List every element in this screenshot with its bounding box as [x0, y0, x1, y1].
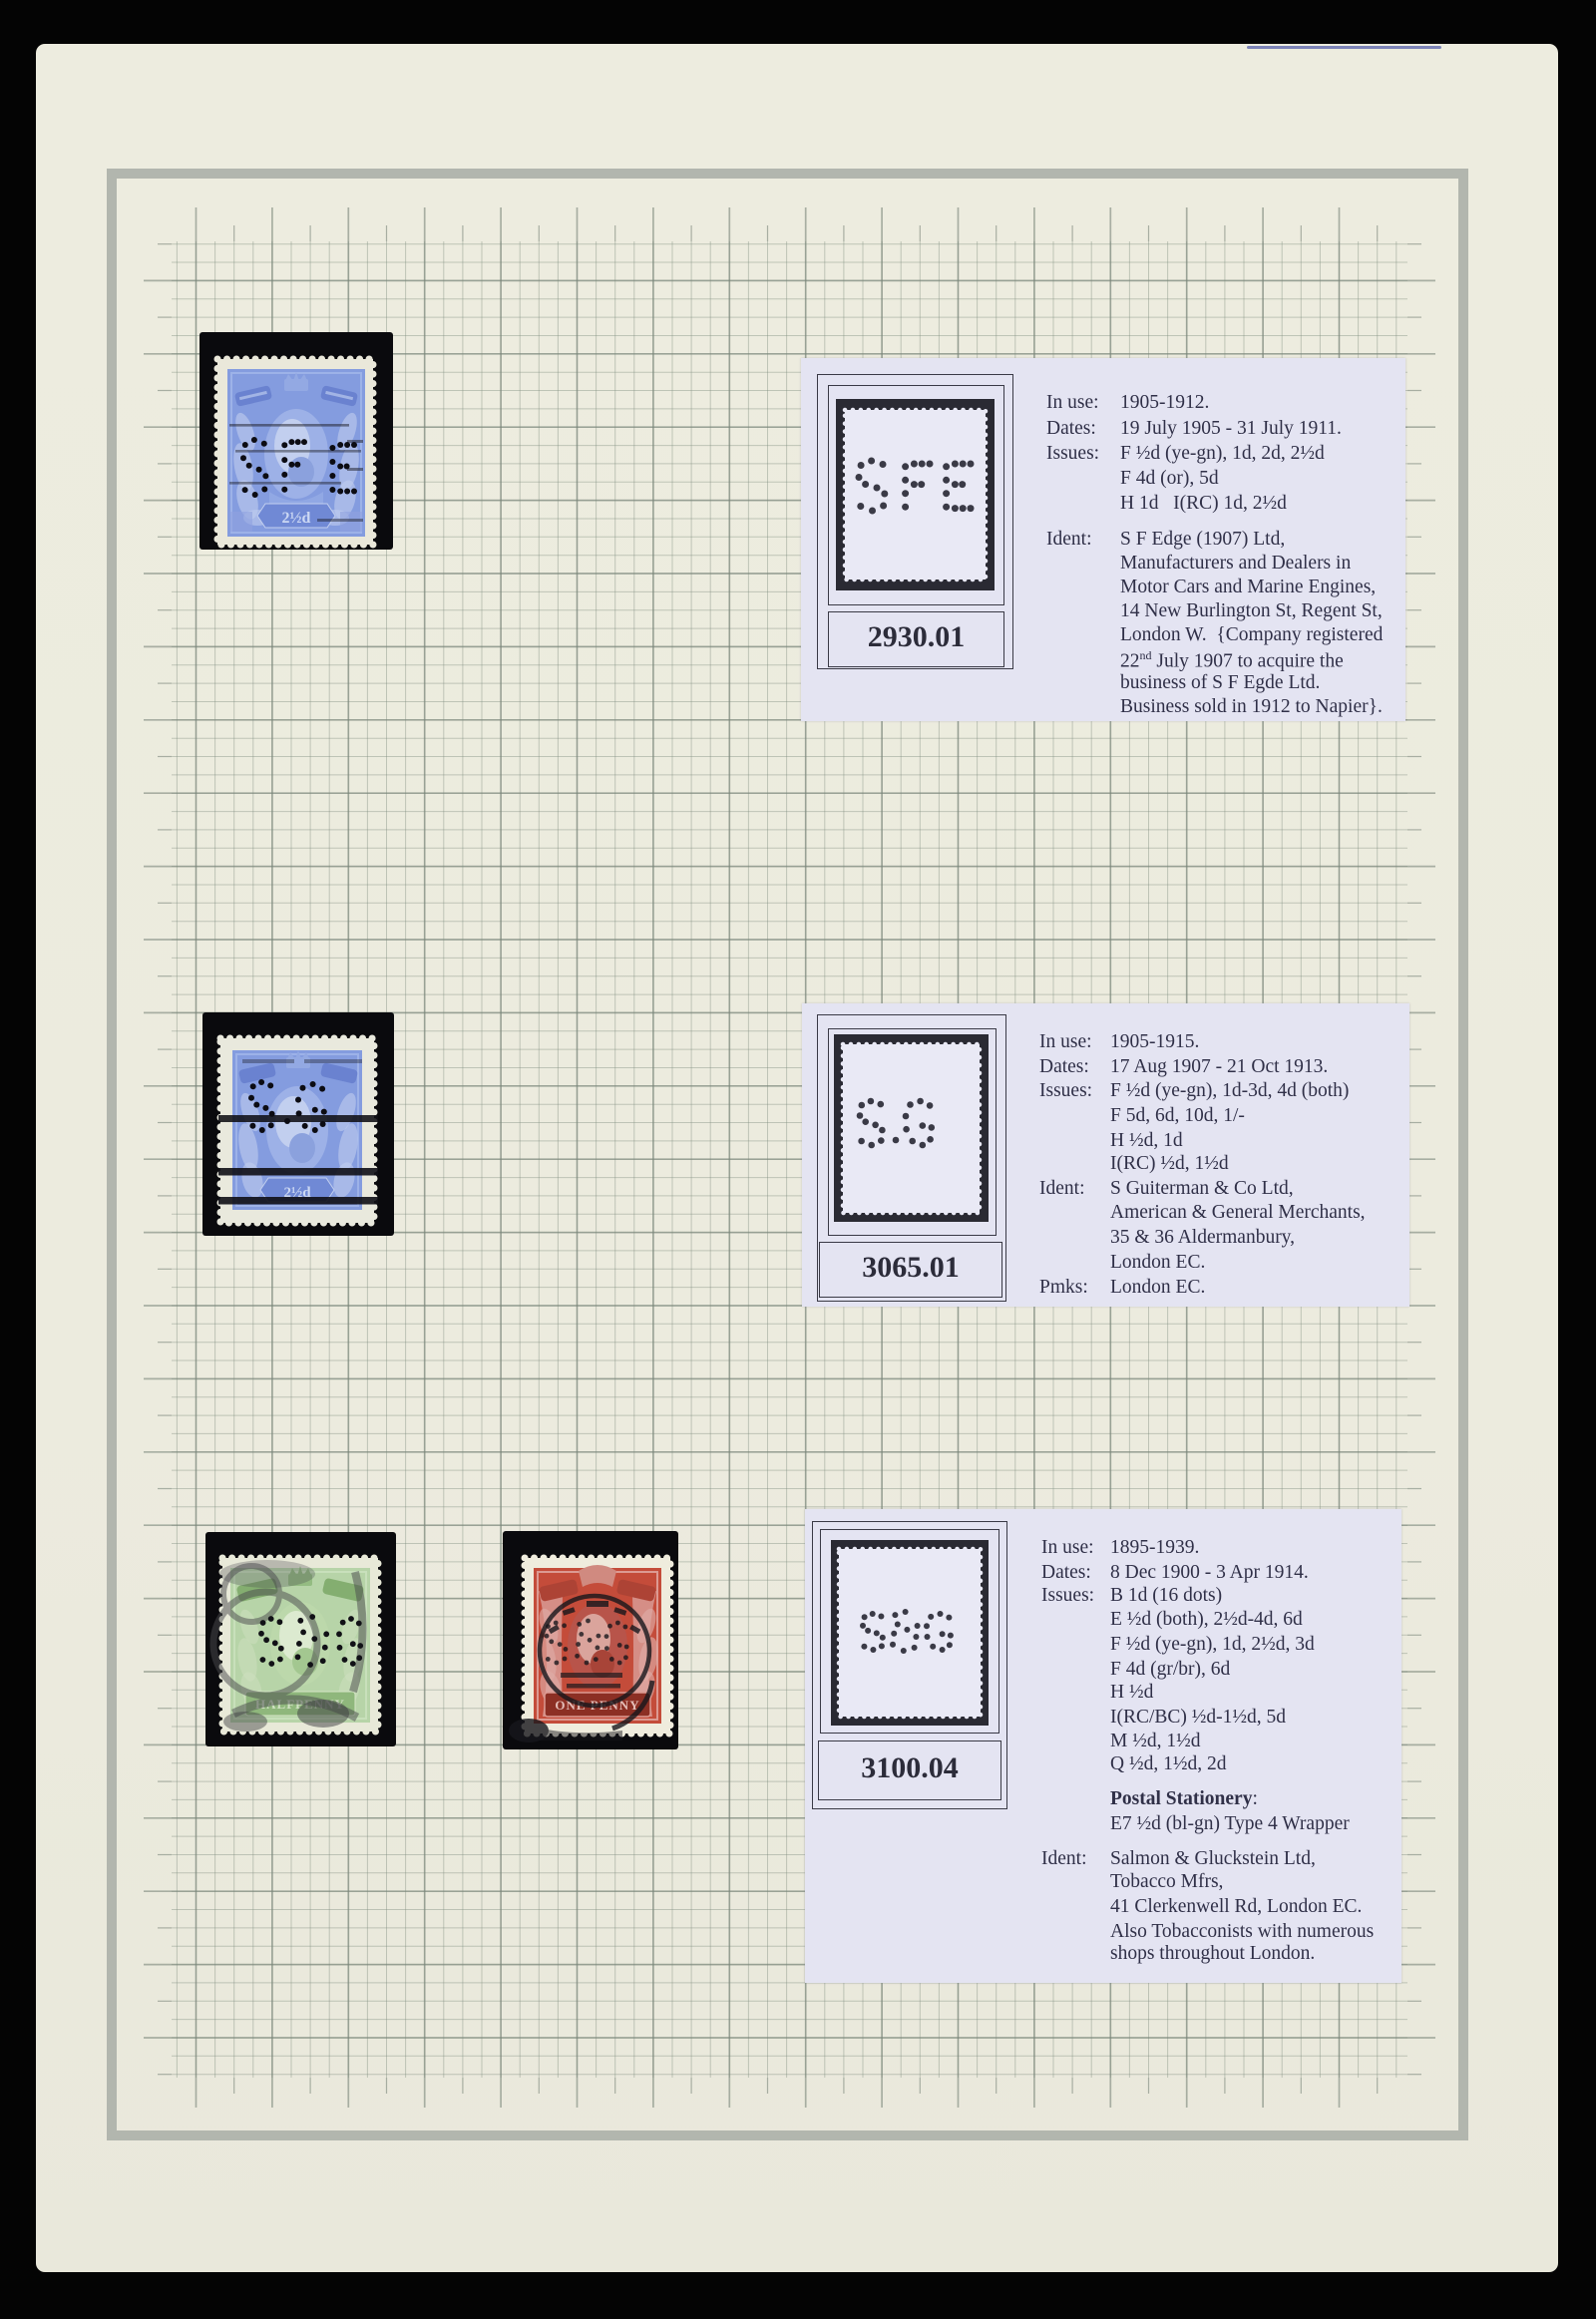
svg-text:2½d: 2½d — [282, 510, 311, 527]
